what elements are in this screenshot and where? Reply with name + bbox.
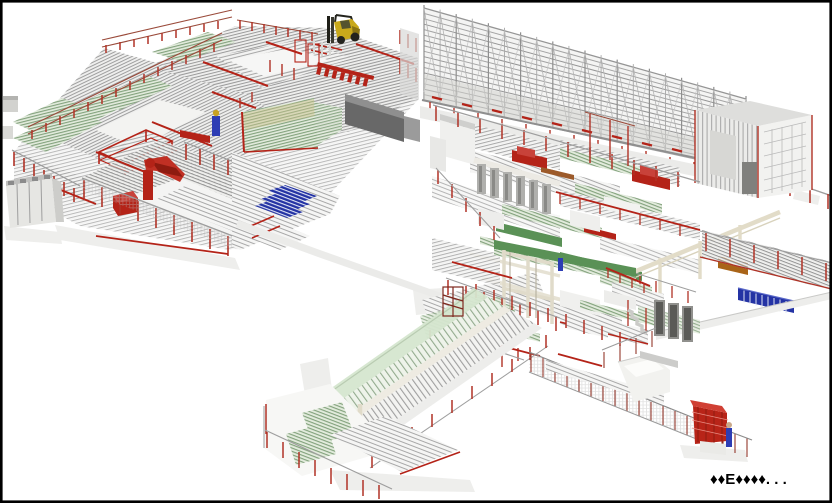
svg-text:♦♦E♦♦♦♦. . .: ♦♦E♦♦♦♦. . .: [710, 471, 787, 488]
